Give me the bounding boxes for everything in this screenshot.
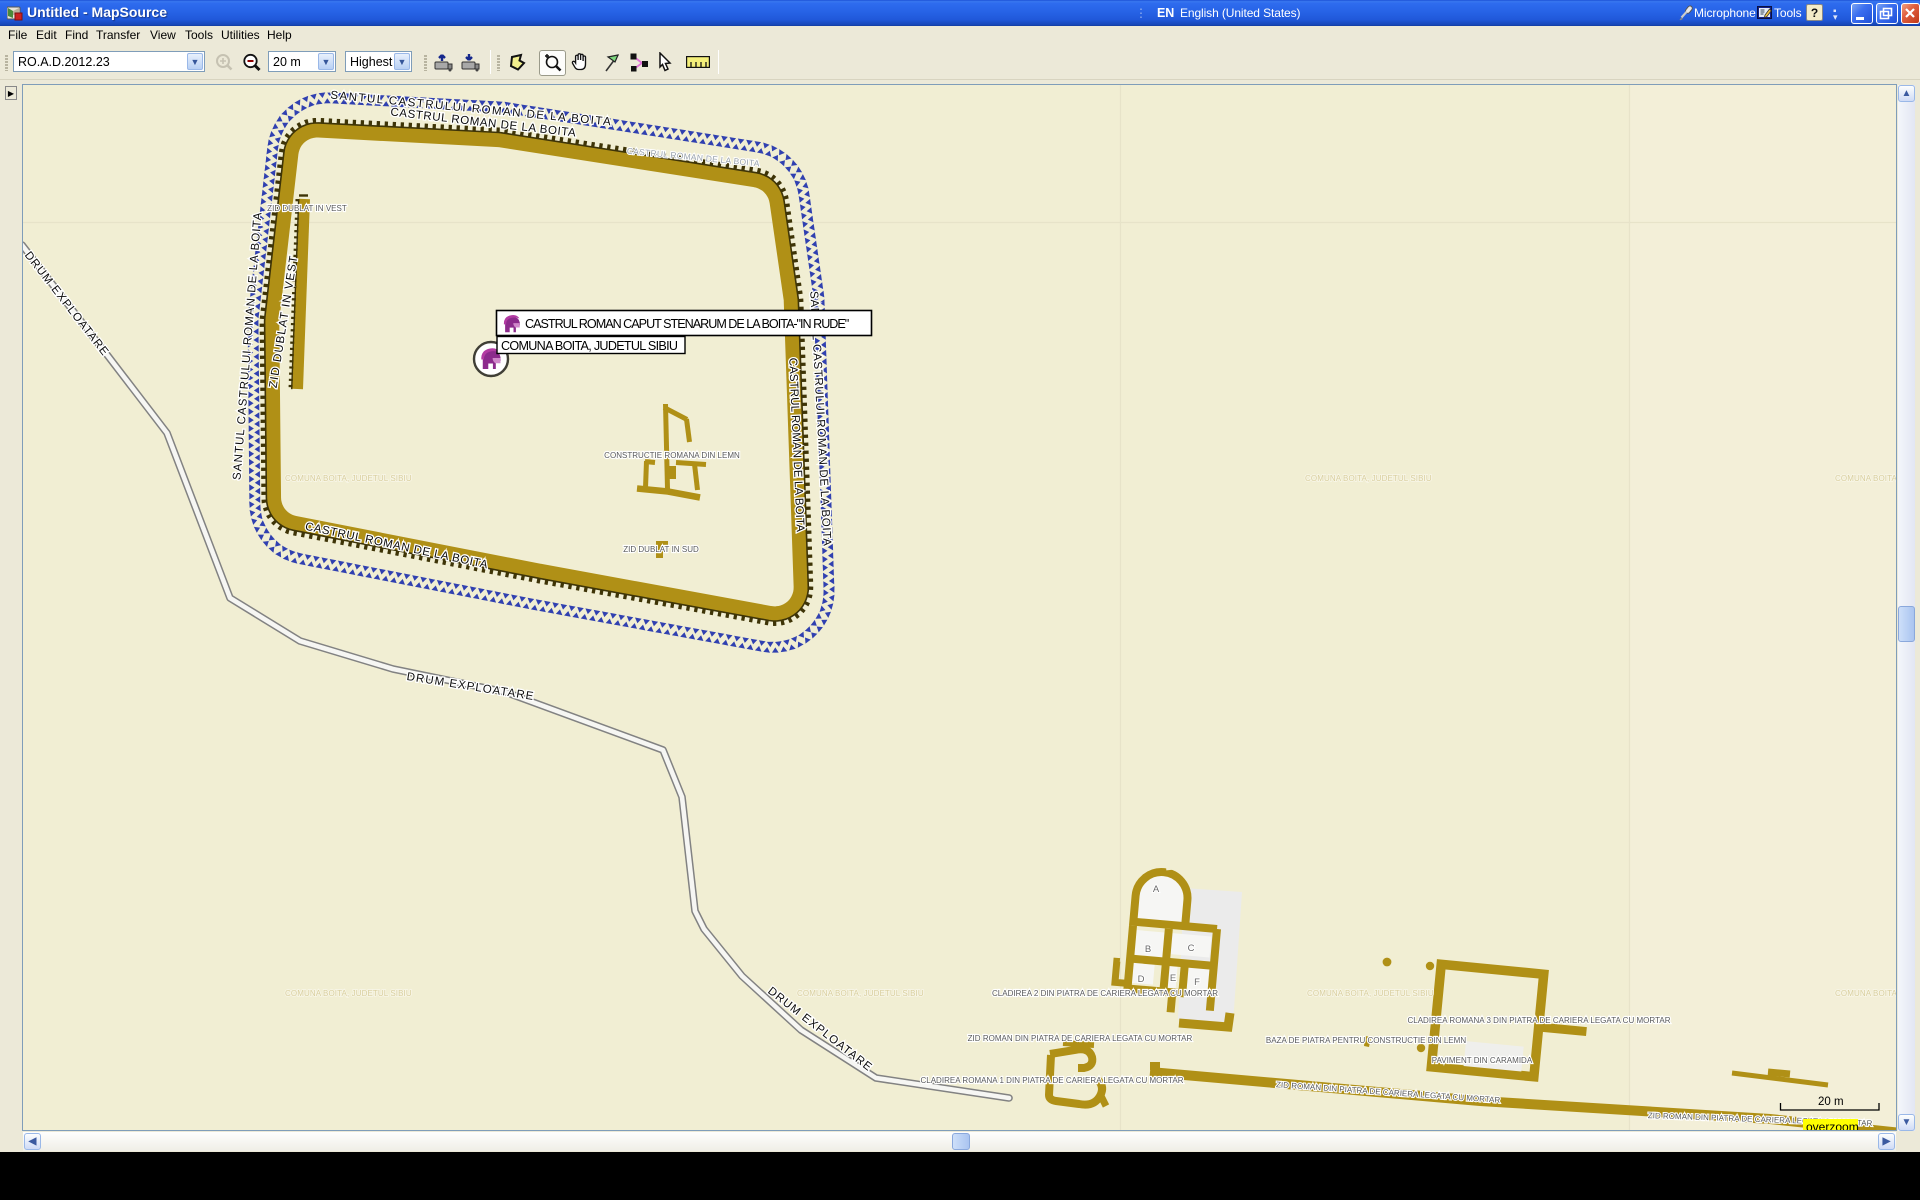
svg-text:D: D xyxy=(1138,974,1145,985)
svg-text:CLADIREA ROMANA 3 DIN PIATRA D: CLADIREA ROMANA 3 DIN PIATRA DE CARIERA … xyxy=(1407,1016,1670,1025)
svg-text:DRUM EXPLOATARE: DRUM EXPLOATARE xyxy=(23,250,111,359)
svg-text:ZID DUBLAT IN SUD: ZID DUBLAT IN SUD xyxy=(623,545,699,554)
svg-text:overzoom: overzoom xyxy=(1806,1120,1859,1130)
svg-text:C: C xyxy=(1188,943,1195,954)
svg-text:B: B xyxy=(1145,944,1151,955)
svg-text:CLADIREA ROMANA 1 DIN PIATRA D: CLADIREA ROMANA 1 DIN PIATRA DE CARIERA … xyxy=(920,1076,1183,1085)
svg-text:CONSTRUCTIE ROMANA DIN LEMN: CONSTRUCTIE ROMANA DIN LEMN xyxy=(604,451,740,460)
svg-text:COMUNA BOITA, JUDETUL SIBIU: COMUNA BOITA, JUDETUL SIBIU xyxy=(285,474,412,483)
svg-text:ZID ROMAN DIN PIATRA DE CARIER: ZID ROMAN DIN PIATRA DE CARIERA LEGATA C… xyxy=(1276,1080,1501,1105)
svg-text:E: E xyxy=(1170,973,1176,984)
svg-text:ZID DUBLAT IN VEST: ZID DUBLAT IN VEST xyxy=(267,204,347,213)
svg-text:COMUNA BOITA, JUDETUL SIBIU: COMUNA BOITA, JUDETUL SIBIU xyxy=(501,339,678,353)
svg-text:ZID ROMAN DIN PIATRA DE CARIER: ZID ROMAN DIN PIATRA DE CARIERA LEGATA C… xyxy=(968,1034,1193,1043)
svg-text:BAZA DE PIATRA PENTRU CONSTRUC: BAZA DE PIATRA PENTRU CONSTRUCTIE DIN LE… xyxy=(1266,1036,1466,1045)
svg-text:COMUNA BOITA, JUDETUL SIBIU: COMUNA BOITA, JUDETUL SIBIU xyxy=(1835,474,1896,483)
svg-text:DRUM EXPLOATARE: DRUM EXPLOATARE xyxy=(765,985,874,1074)
svg-text:CLADIREA 2 DIN PIATRA DE CARIE: CLADIREA 2 DIN PIATRA DE CARIERA LEGATA … xyxy=(992,989,1218,998)
svg-text:COMUNA BOITA, JUDETUL SIBIU: COMUNA BOITA, JUDETUL SIBIU xyxy=(285,989,412,998)
svg-text:COMUNA BOITA, JUDETUL SIBIU: COMUNA BOITA, JUDETUL SIBIU xyxy=(1305,474,1432,483)
svg-text:A: A xyxy=(1153,884,1160,895)
svg-text:COMUNA BOITA, JUDETUL SIBIU: COMUNA BOITA, JUDETUL SIBIU xyxy=(1307,989,1434,998)
svg-text:DRUM EXPLOATARE: DRUM EXPLOATARE xyxy=(406,671,535,703)
svg-text:COMUNA BOITA, JUDETUL SIBIU: COMUNA BOITA, JUDETUL SIBIU xyxy=(1835,989,1896,998)
svg-text:PAVIMENT DIN CARAMIDA: PAVIMENT DIN CARAMIDA xyxy=(1432,1056,1533,1065)
svg-text:F: F xyxy=(1194,977,1200,988)
svg-text:20 m: 20 m xyxy=(1818,1096,1844,1108)
svg-text:CASTRUL ROMAN CAPUT STENARUM D: CASTRUL ROMAN CAPUT STENARUM DE LA BOITA… xyxy=(525,317,849,331)
svg-text:COMUNA BOITA, JUDETUL SIBIU: COMUNA BOITA, JUDETUL SIBIU xyxy=(797,989,924,998)
